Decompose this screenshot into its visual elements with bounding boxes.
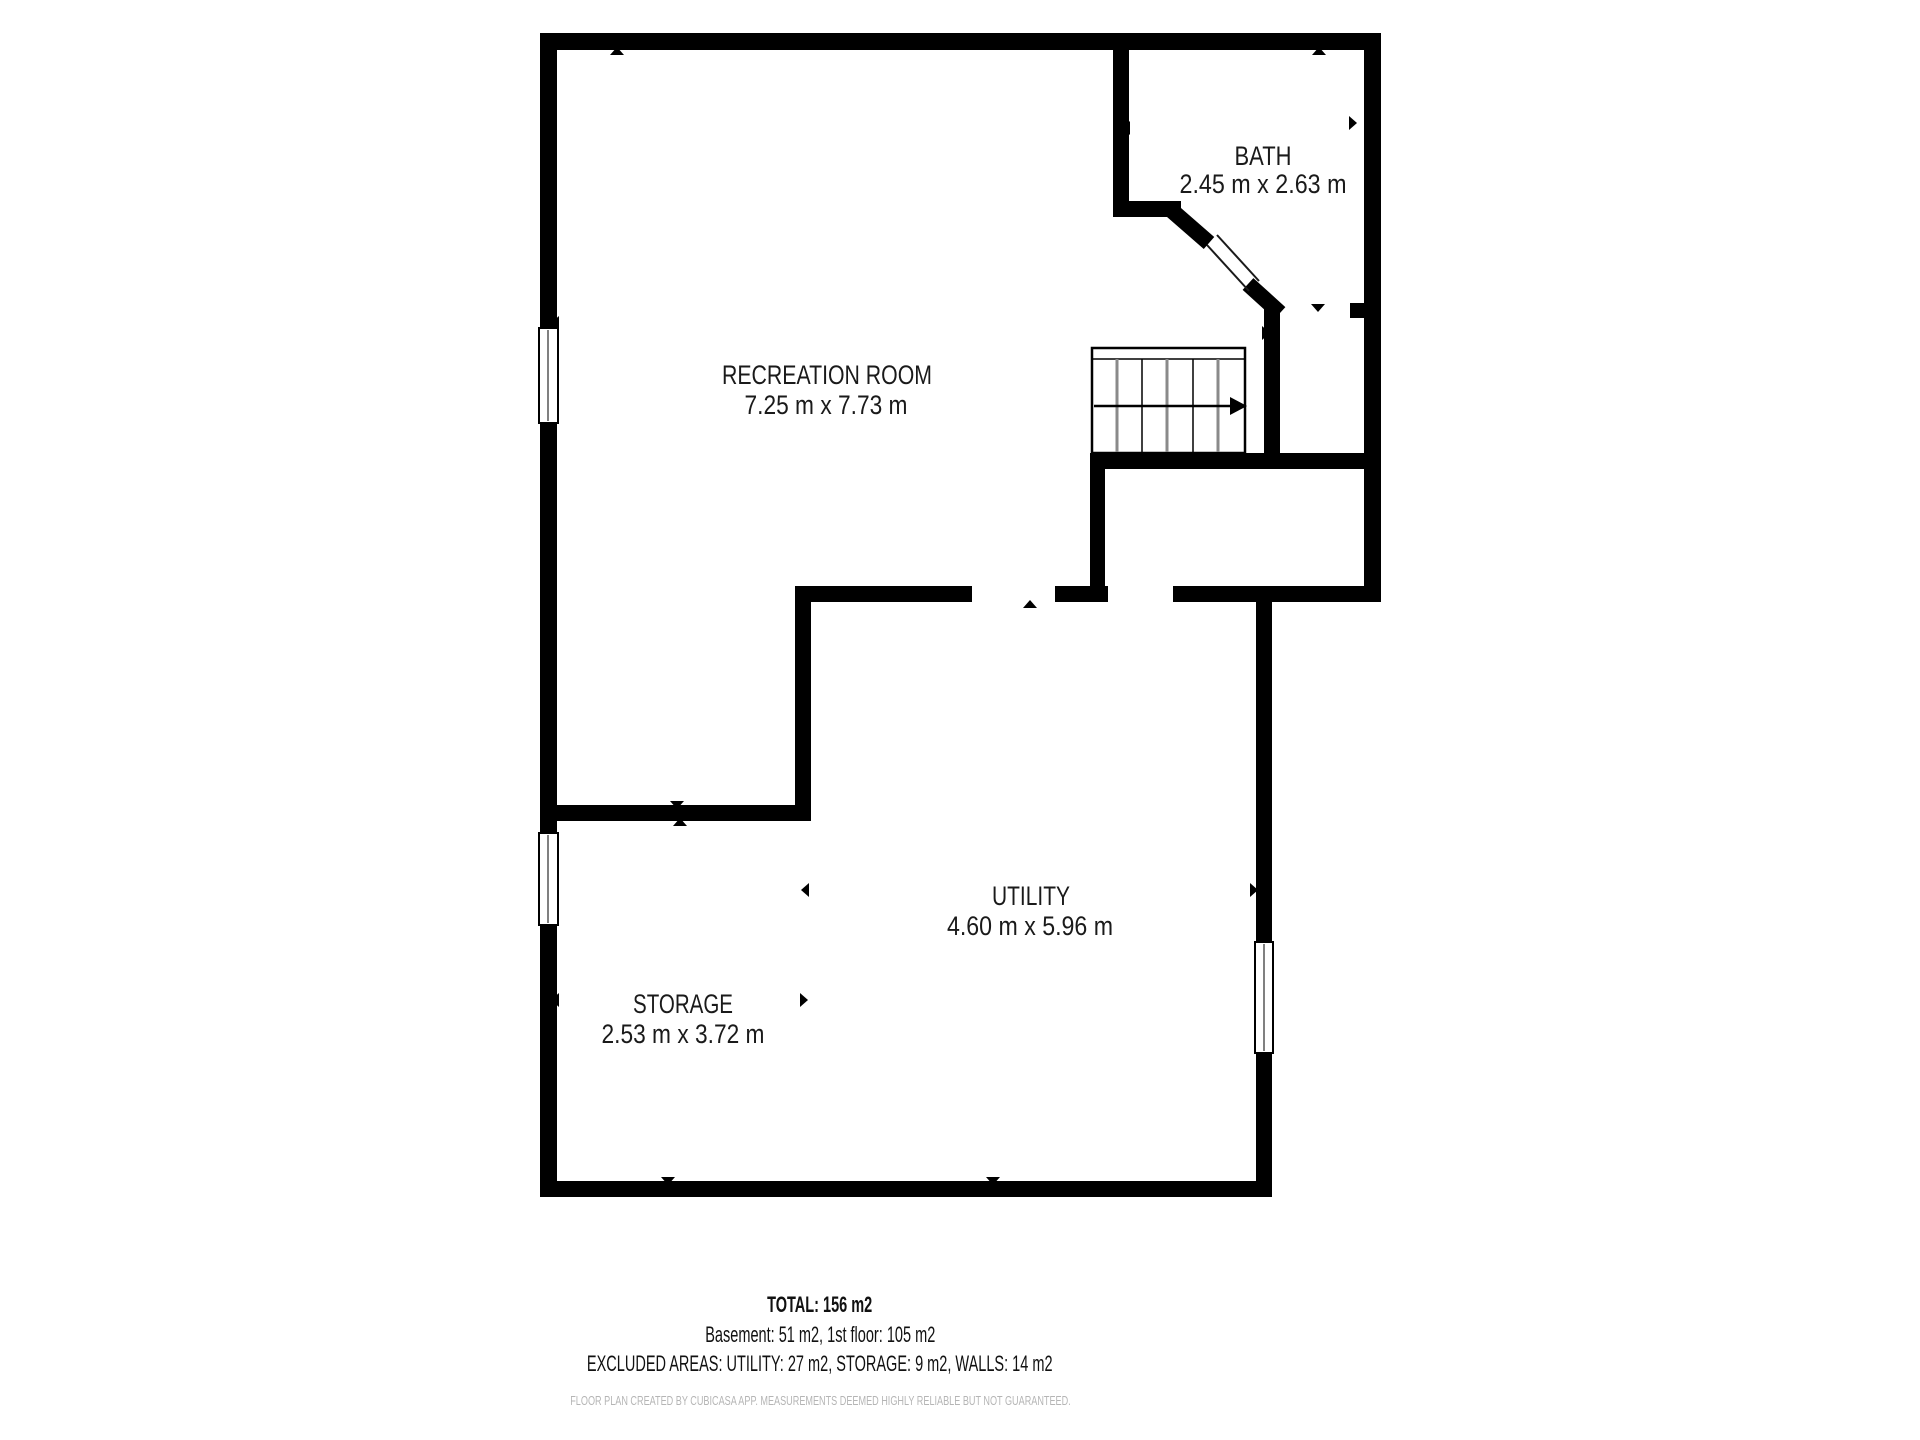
wall-utility-right [1256,586,1272,1197]
door-leaf-line [1217,235,1259,281]
wall-mid-horizontal-c [1173,586,1381,602]
measure-arrow-right-icon [800,993,808,1007]
door-jamb-right-wall [1350,303,1364,318]
floor-plan-drawing: RECREATION ROOM 7.25 m x 7.73 m BATH 2.4… [0,0,1920,1440]
summary-excluded-areas-text: EXCLUDED AREAS: UTILITY: 27 m2, STORAGE:… [587,1351,1053,1377]
room-label-storage: STORAGE [633,989,733,1019]
summary-total-text: TOTAL: 156 m2 [767,1292,872,1318]
measure-arrow-left-icon [801,883,809,897]
floor-plan-page: RECREATION ROOM 7.25 m x 7.73 m BATH 2.4… [0,0,1920,1440]
room-dims-storage: 2.53 m x 3.72 m [602,1019,765,1049]
summary-floors-text: Basement: 51 m2, 1st floor: 105 m2 [705,1322,935,1348]
wall-stairs-bottom [1092,453,1364,469]
wall-outer-right-upper [1364,33,1381,602]
wall-stairs-left [1090,453,1105,602]
wall-outer-top [540,33,1381,50]
wall-recreation-bottom [540,805,811,821]
room-dims-recreation: 7.25 m x 7.73 m [745,390,908,420]
measure-arrow-down-icon [1311,304,1325,312]
wall-bath-diagonal-upper [1170,209,1209,243]
measure-arrow-up-icon [1023,600,1037,608]
room-label-bath: BATH [1235,141,1292,171]
summary-floors: Basement: 51 m2, 1st floor: 105 m2 [0,1322,1640,1348]
room-dims-bath: 2.45 m x 2.63 m [1180,169,1347,199]
door-leaf-line [1207,245,1249,291]
wall-outer-left [540,33,557,1197]
room-label-utility: UTILITY [992,881,1070,911]
wall-landing-left [1264,306,1280,453]
wall-outer-bottom [540,1181,1272,1197]
room-label-recreation: RECREATION ROOM [722,360,932,390]
summary-total: TOTAL: 156 m2 [0,1292,1640,1318]
summary-excluded-areas: EXCLUDED AREAS: UTILITY: 27 m2, STORAGE:… [0,1351,1640,1377]
summary-disclaimer-text: FLOOR PLAN CREATED BY CUBICASA APP. MEAS… [570,1393,1070,1408]
room-dims-utility: 4.60 m x 5.96 m [947,911,1113,941]
measure-arrow-right-icon [1349,116,1357,130]
wall-mid-horizontal-a [795,586,972,602]
summary-disclaimer: FLOOR PLAN CREATED BY CUBICASA APP. MEAS… [0,1393,1640,1408]
wall-utility-left [795,586,811,821]
stairs [1092,348,1247,453]
